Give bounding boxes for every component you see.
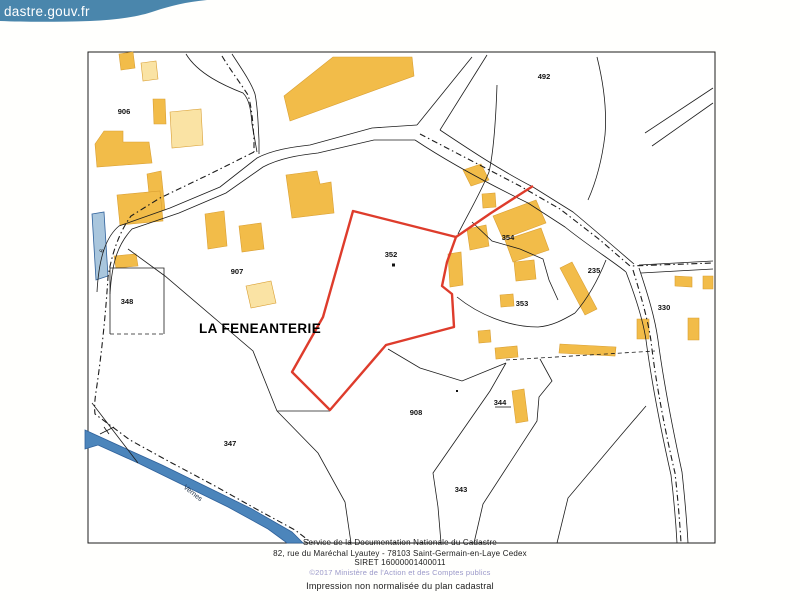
place-name-label: LA FENEANTERIE [199, 321, 321, 336]
footer-service-line: Service de la Documentation Nationale du… [0, 538, 800, 547]
building [495, 346, 518, 359]
parcel-label-343: 343 [455, 485, 468, 494]
building [637, 319, 649, 339]
footer-siret-line: SIRET 16000001400011 [0, 558, 800, 567]
site-banner: dastre.gouv.fr [0, 0, 230, 26]
small-marker-dot [456, 390, 458, 392]
building [703, 276, 713, 289]
parcel-label-353: 353 [516, 299, 529, 308]
building [153, 99, 166, 124]
light-building [141, 61, 158, 81]
cadastral-map: 906 907 352 354 492 235 330 353 348 908 … [0, 0, 800, 600]
parcel-label-908: 908 [410, 408, 423, 417]
parcel-label-235: 235 [588, 266, 601, 275]
parcel-label-907: 907 [231, 267, 244, 276]
building [500, 294, 514, 307]
parcel-label-906: 906 [118, 107, 131, 116]
building [514, 260, 536, 281]
parcel-label-492: 492 [538, 72, 551, 81]
parcel-label-348: 348 [121, 297, 134, 306]
building [675, 276, 692, 287]
building [467, 225, 489, 250]
building [239, 223, 264, 252]
print-preview-page: 906 907 352 354 492 235 330 353 348 908 … [0, 0, 800, 600]
site-logo[interactable]: dastre.gouv.fr [4, 4, 90, 19]
footer-copyright-line: ©2017 Ministère de l'Action et des Compt… [0, 568, 800, 577]
parcel-label-347: 347 [224, 439, 237, 448]
footer-address-line: 82, rue du Maréchal Lyautey - 78103 Sain… [0, 549, 800, 558]
footer-disclaimer-line: Impression non normalisée du plan cadast… [0, 581, 800, 591]
parcel-label-352: 352 [385, 250, 398, 259]
building [119, 52, 135, 70]
light-building [170, 109, 203, 148]
parcel-label-354: 354 [502, 233, 515, 242]
building [114, 254, 138, 268]
building [688, 318, 699, 340]
light-building [246, 281, 276, 308]
parcel-label-330: 330 [658, 303, 671, 312]
building [478, 330, 491, 343]
building [448, 252, 463, 287]
building [205, 211, 227, 249]
building [482, 193, 496, 208]
building [117, 191, 163, 225]
parcel-352-marker-dot [392, 264, 395, 267]
parcel-label-344: 344 [494, 398, 507, 407]
